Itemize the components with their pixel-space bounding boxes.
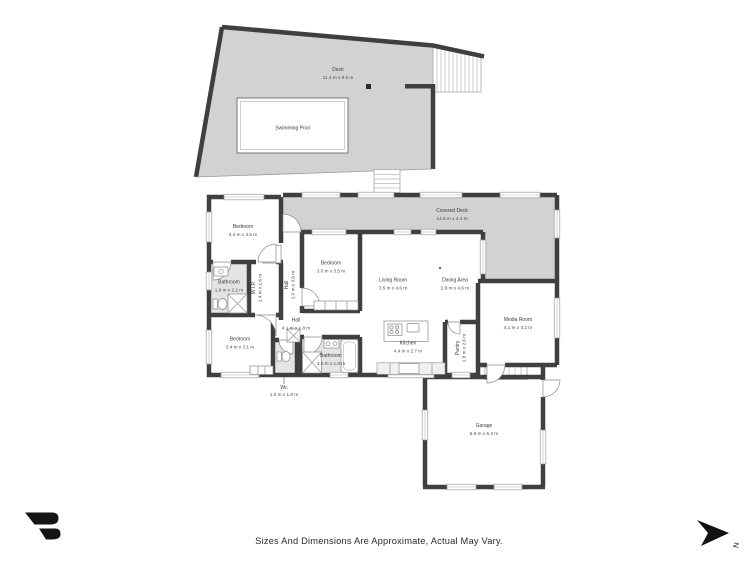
dining-area-dims: 2.8 m x 4.6 m (441, 286, 469, 291)
hall-horizontal-dims: 4.1 m x 1.8 m (282, 326, 310, 331)
deck-dims: 11.4 m x 9.5 m (323, 75, 354, 80)
wir-label: W.I.R (251, 282, 257, 295)
floor-plan: Swimming Pool Deck 11.4 m x 9.5 m Covere… (0, 0, 749, 562)
bathroom-bottom-label: Bathroom (320, 353, 342, 359)
north-arrow-icon: N (697, 520, 741, 549)
media-room-label: Media Room (504, 317, 532, 323)
bathroom-top-label: Bathroom (218, 280, 240, 286)
living-room-label: Living Room (379, 278, 407, 284)
double-sink-icon (324, 340, 339, 349)
bathtub-icon (341, 340, 358, 373)
bedroom-top-dims: 3.4 m x 3.5 m (229, 232, 257, 237)
bathroom-bottom-dims: 3.0 m x 1.8 m (317, 361, 345, 366)
bedroom-bottom-label: Bedroom (230, 337, 250, 343)
swimming-pool: Swimming Pool (237, 98, 348, 153)
hall-horizontal-label: Hall (292, 318, 301, 324)
wir-dims: 1.4 m x 1.6 m (258, 274, 263, 302)
bedroom-top-label: Bedroom (233, 224, 253, 230)
hall-vertical-label: Hall (284, 281, 290, 290)
wc-label: Wc (280, 385, 288, 391)
pantry-label: Pantry (455, 340, 461, 355)
wc-dims: 1.0 m x 1.8 m (270, 392, 298, 397)
linen-cupboard-icon (287, 329, 300, 342)
kitchen-label: Kitchen (400, 341, 417, 347)
hall-vertical-dims: 1.0 m x 3.6 m (291, 271, 296, 299)
deck-area: Swimming Pool Deck 11.4 m x 9.5 m (196, 27, 484, 197)
north-label: N (731, 542, 741, 549)
bedroom-mid-label: Bedroom (321, 261, 341, 267)
deck-post (366, 84, 371, 89)
footer: Sizes And Dimensions Are Approximate, Ac… (25, 513, 741, 549)
garage-label: Garage (476, 423, 493, 429)
garage-dims: 5.9 m x 6.4 m (470, 431, 498, 436)
shower-icon (228, 294, 247, 313)
disclaimer-text: Sizes And Dimensions Are Approximate, Ac… (255, 536, 503, 546)
kitchen-counter (377, 363, 445, 375)
swimming-pool-label: Swimming Pool (275, 126, 309, 132)
toilet-icon (213, 299, 227, 310)
pantry-door-arc (448, 322, 460, 334)
pantry-dims: 1.8 m x 2.6 m (462, 334, 467, 362)
garage-side-door-arc (543, 380, 560, 397)
bedroom-bottom-dims: 3.4 m x 3.1 m (226, 345, 254, 350)
wc-toilet-icon (277, 352, 290, 362)
wardrobe-icon (250, 366, 273, 375)
bathroom-top-dims: 1.9 m x 2.2 m (215, 288, 243, 293)
covered-deck-label: Covered Deck (436, 208, 468, 214)
living-room-dims: 3.5 m x 4.6 m (379, 286, 407, 291)
deck-label: Deck (332, 67, 344, 73)
sink-icon (214, 267, 228, 276)
kitchen-dims: 4.4 m x 2.7 m (394, 349, 422, 354)
wir-door-arc (258, 244, 276, 262)
covered-deck-dims: 14.6 m x 4.4 m (436, 216, 467, 221)
media-room-door-arc (487, 365, 505, 383)
bedroom-mid-dims: 3.0 m x 3.5 m (317, 269, 345, 274)
dining-area-label: Dining Area (442, 278, 468, 284)
brand-logo (25, 513, 61, 540)
kitchen-island (384, 321, 428, 342)
wardrobe-icon (314, 301, 358, 310)
media-room-dims: 4.1 m x 4.2 m (504, 325, 532, 330)
ceiling-point (439, 267, 441, 269)
